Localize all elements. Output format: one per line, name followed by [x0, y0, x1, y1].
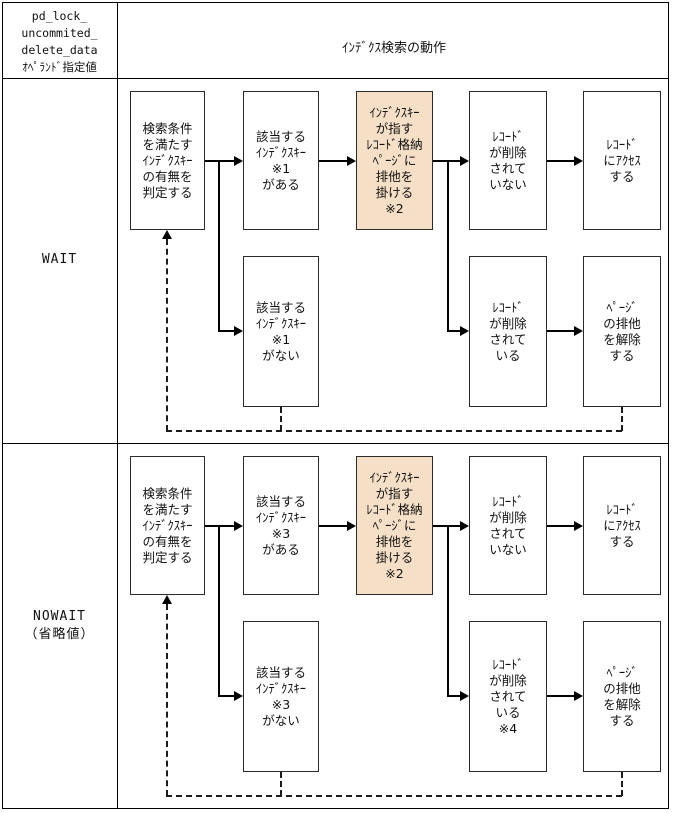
wait-box-judge-index-keys: 検索条件 を満たす ｲﾝﾃﾞｸｽｷｰ の有無を 判定する [130, 91, 205, 230]
nowait-arrow-notdeleted-to-access-head [574, 521, 583, 531]
wait-dashed-from-notfound [280, 407, 282, 431]
wait-arrow-deleted-to-release-head [574, 326, 583, 336]
nowait-dashed-from-release [621, 772, 623, 796]
wait-branch2-down-line [447, 160, 449, 332]
wait-arrow-lock-to-notdeleted-head [460, 156, 469, 166]
wait-arrow-judge-to-notfound-line [219, 330, 235, 332]
wait-dashed-return-arrowhead [162, 230, 172, 239]
wait-arrow-found-to-lock-head [347, 156, 356, 166]
wait-box-record-not-deleted: ﾚｺｰﾄﾞ が削除 されて いない [469, 91, 547, 230]
nowait-arrow-deleted-to-release-head [574, 691, 583, 701]
nowait-arrow-deleted-to-release-line [547, 695, 575, 697]
behavior-header-cell: ｲﾝﾃﾞｸｽ検索の動作 [118, 37, 670, 56]
wait-arrow-deleted-to-release-line [547, 330, 575, 332]
nowait-arrow-notdeleted-to-access-line [547, 525, 575, 527]
wait-box-key-not-found: 該当する ｲﾝﾃﾞｸｽｷｰ ※1 がない [243, 256, 319, 407]
nowait-dashed-from-notfound [280, 772, 282, 796]
nowait-dashed-return-horizontal [166, 795, 622, 797]
nowait-arrow-judge-to-notfound-line [219, 695, 235, 697]
wait-arrow-found-to-lock-line [319, 160, 348, 162]
nowait-box-access-record: ﾚｺｰﾄﾞ にｱｸｾｽ する [583, 456, 661, 595]
operand-header-cell: pd_lock_ uncommited_ delete_data ｵﾍﾟﾗﾝﾄﾞ… [3, 8, 116, 76]
nowait-arrow-found-to-lock-head [347, 521, 356, 531]
wait-arrow-judge-to-notfound-head [234, 326, 243, 336]
nowait-box-record-deleted: ﾚｺｰﾄﾞ が削除 されて いる ※4 [469, 621, 547, 772]
nowait-box-release-page-lock: ﾍﾟｰｼﾞ の排他 を解除 する [583, 621, 661, 772]
wait-box-lock-record-page: ｲﾝﾃﾞｸｽｷｰ が指す ﾚｺｰﾄﾞ格納 ﾍﾟｰｼﾞに 排他を 掛ける ※2 [356, 91, 433, 230]
index-search-behavior-diagram: pd_lock_ uncommited_ delete_data ｵﾍﾟﾗﾝﾄﾞ… [0, 0, 675, 813]
nowait-box-key-found: 該当する ｲﾝﾃﾞｸｽｷｰ ※3 がある [243, 456, 319, 595]
wait-flowchart: 検索条件 を満たす ｲﾝﾃﾞｸｽｷｰ の有無を 判定する 該当する ｲﾝﾃﾞｸｽ… [0, 78, 675, 443]
nowait-arrow-found-to-lock-line [319, 525, 348, 527]
wait-arrow-notdeleted-to-access-line [547, 160, 575, 162]
wait-box-access-record: ﾚｺｰﾄﾞ にｱｸｾｽ する [583, 91, 661, 230]
nowait-arrow-judge-to-found-head [234, 521, 243, 531]
wait-box-record-deleted: ﾚｺｰﾄﾞ が削除 されて いる [469, 256, 547, 407]
nowait-branch-down-line [218, 525, 220, 697]
wait-branch-down-line [218, 160, 220, 332]
nowait-arrow-judge-to-found-line [205, 525, 235, 527]
nowait-dashed-return-vertical [166, 604, 168, 796]
wait-arrow-lock-to-deleted-head [460, 326, 469, 336]
nowait-dashed-return-arrowhead [162, 595, 172, 604]
nowait-arrow-lock-to-deleted-head [460, 691, 469, 701]
wait-box-release-page-lock: ﾍﾟｰｼﾞ の排他 を解除 する [583, 256, 661, 407]
wait-dashed-from-release [621, 407, 623, 431]
nowait-flowchart: 検索条件 を満たす ｲﾝﾃﾞｸｽｷｰ の有無を 判定する 該当する ｲﾝﾃﾞｸｽ… [0, 443, 675, 810]
nowait-box-record-not-deleted: ﾚｺｰﾄﾞ が削除 されて いない [469, 456, 547, 595]
wait-arrow-notdeleted-to-access-head [574, 156, 583, 166]
nowait-box-lock-record-page: ｲﾝﾃﾞｸｽｷｰ が指す ﾚｺｰﾄﾞ格納 ﾍﾟｰｼﾞに 排他を 掛ける ※2 [356, 456, 433, 595]
wait-arrow-judge-to-found-head [234, 156, 243, 166]
nowait-arrow-lock-to-notdeleted-head [460, 521, 469, 531]
wait-box-key-found: 該当する ｲﾝﾃﾞｸｽｷｰ ※1 がある [243, 91, 319, 230]
nowait-box-judge-index-keys: 検索条件 を満たす ｲﾝﾃﾞｸｽｷｰ の有無を 判定する [130, 456, 205, 595]
wait-dashed-return-vertical [166, 239, 168, 431]
nowait-box-key-not-found: 該当する ｲﾝﾃﾞｸｽｷｰ ※3 がない [243, 621, 319, 772]
wait-arrow-judge-to-found-line [205, 160, 235, 162]
nowait-branch2-down-line [447, 525, 449, 697]
nowait-arrow-judge-to-notfound-head [234, 691, 243, 701]
wait-dashed-return-horizontal [166, 430, 622, 432]
